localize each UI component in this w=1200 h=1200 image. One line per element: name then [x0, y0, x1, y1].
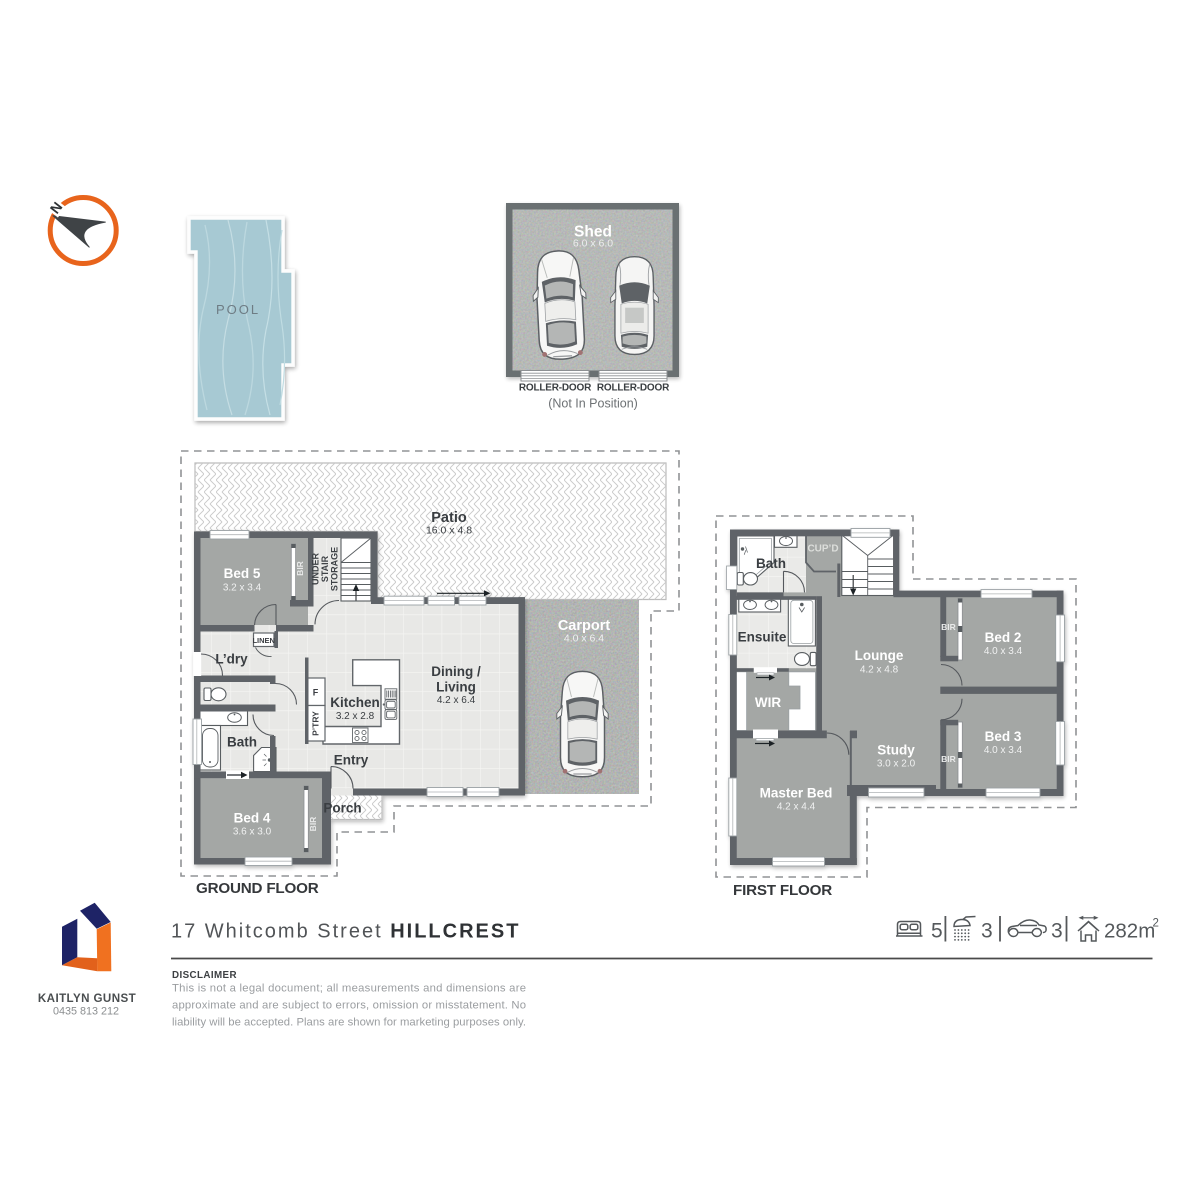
svg-text:3.2 x 3.4: 3.2 x 3.4 — [223, 583, 262, 594]
svg-text:Living: Living — [436, 680, 476, 695]
svg-text:BIR: BIR — [308, 817, 318, 832]
svg-text:2: 2 — [1153, 918, 1159, 930]
svg-text:Bath: Bath — [756, 556, 786, 571]
svg-text:(Not In Position): (Not In Position) — [548, 397, 638, 411]
svg-text:KAITLYN GUNST: KAITLYN GUNST — [38, 992, 136, 1005]
svg-text:Porch: Porch — [323, 801, 361, 816]
svg-text:BIR: BIR — [295, 561, 305, 576]
svg-text:WIR: WIR — [755, 695, 781, 710]
svg-text:FIRST FLOOR: FIRST FLOOR — [733, 882, 832, 899]
svg-text:4.2 x 4.8: 4.2 x 4.8 — [860, 665, 899, 676]
svg-text:ROLLER-DOOR: ROLLER-DOOR — [519, 383, 592, 394]
svg-text:STAIR: STAIR — [320, 555, 330, 582]
svg-text:Bed 3: Bed 3 — [985, 729, 1022, 744]
svg-text:Bath: Bath — [227, 735, 257, 750]
svg-text:3.6 x 3.0: 3.6 x 3.0 — [233, 827, 272, 838]
svg-text:4.2 x 6.4: 4.2 x 6.4 — [437, 695, 476, 706]
svg-text:BIR: BIR — [941, 754, 956, 764]
svg-text:STORAGE: STORAGE — [330, 547, 340, 591]
svg-text:F: F — [313, 688, 319, 698]
svg-text:LINEN: LINEN — [252, 636, 275, 645]
svg-text:3.0 x 2.0: 3.0 x 2.0 — [877, 759, 916, 770]
svg-text:DISCLAIMER: DISCLAIMER — [172, 970, 237, 981]
svg-text:16.0 x 4.8: 16.0 x 4.8 — [426, 525, 472, 537]
svg-text:3.2 x 2.8: 3.2 x 2.8 — [336, 711, 375, 722]
svg-text:BIR: BIR — [941, 622, 956, 632]
svg-text:This is not a legal document;: This is not a legal document; all measur… — [172, 983, 526, 995]
svg-text:0435 813 212: 0435 813 212 — [53, 1006, 119, 1018]
svg-text:282m: 282m — [1104, 920, 1155, 943]
svg-text:GROUND FLOOR: GROUND FLOOR — [196, 880, 319, 897]
svg-text:4.0 x 6.4: 4.0 x 6.4 — [564, 633, 604, 645]
svg-text:Entry: Entry — [334, 753, 369, 768]
svg-text:L’dry: L’dry — [215, 652, 248, 667]
svg-text:P’TRY: P’TRY — [310, 711, 320, 736]
svg-text:17 Whitcomb Street HILLCREST: 17 Whitcomb Street HILLCREST — [171, 921, 520, 943]
svg-text:UNDER: UNDER — [311, 553, 321, 586]
svg-text:6.0 x 6.0: 6.0 x 6.0 — [573, 238, 613, 250]
svg-text:3: 3 — [1051, 920, 1063, 943]
svg-text:3: 3 — [981, 920, 993, 943]
svg-text:POOL: POOL — [216, 302, 260, 317]
svg-text:approximate and are subject to: approximate and are subject to errors, o… — [172, 1000, 526, 1012]
svg-text:Bed 4: Bed 4 — [234, 811, 271, 826]
svg-text:Bed 2: Bed 2 — [985, 630, 1022, 645]
svg-text:Study: Study — [877, 743, 915, 758]
svg-text:5: 5 — [931, 920, 943, 943]
svg-text:Ensuite: Ensuite — [738, 630, 787, 645]
svg-text:Master Bed: Master Bed — [760, 786, 833, 801]
svg-text:CUP’D: CUP’D — [807, 544, 838, 555]
svg-text:Dining /: Dining / — [431, 664, 481, 679]
svg-text:Lounge: Lounge — [855, 648, 904, 663]
svg-text:4.2 x 4.4: 4.2 x 4.4 — [777, 802, 816, 813]
svg-text:4.0 x 3.4: 4.0 x 3.4 — [984, 646, 1023, 657]
svg-text:Kitchen: Kitchen — [330, 695, 380, 710]
svg-text:4.0 x 3.4: 4.0 x 3.4 — [984, 745, 1023, 756]
svg-text:ROLLER-DOOR: ROLLER-DOOR — [597, 383, 670, 394]
svg-text:liability will be accepted. Pl: liability will be accepted. Plans are sh… — [172, 1017, 526, 1029]
svg-text:Bed 5: Bed 5 — [224, 566, 261, 581]
